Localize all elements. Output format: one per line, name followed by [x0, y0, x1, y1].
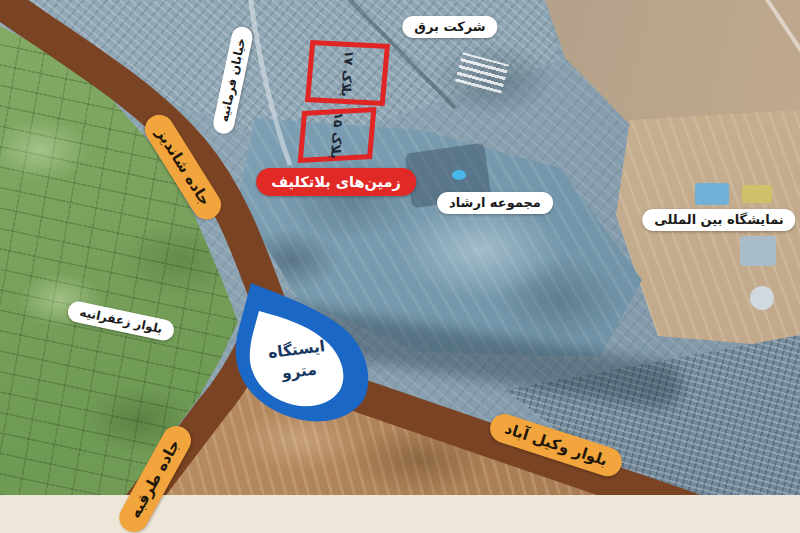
label-intl-exhibition: نمایشگاه بین المللی — [642, 209, 795, 231]
label-undecided-lands: زمین‌های بلاتکلیف — [256, 168, 416, 196]
metro-station-label: ایستگاه مترو — [267, 335, 329, 387]
map-infographic: پلاک ۱۷ پلاک ۱۵ ایستگاه مترو شرکت برق خی… — [0, 0, 800, 533]
metro-station-pin — [0, 0, 800, 533]
label-ershad-complex: مجموعه ارشاد — [437, 192, 553, 214]
label-electric-company: شرکت برق — [402, 16, 497, 38]
